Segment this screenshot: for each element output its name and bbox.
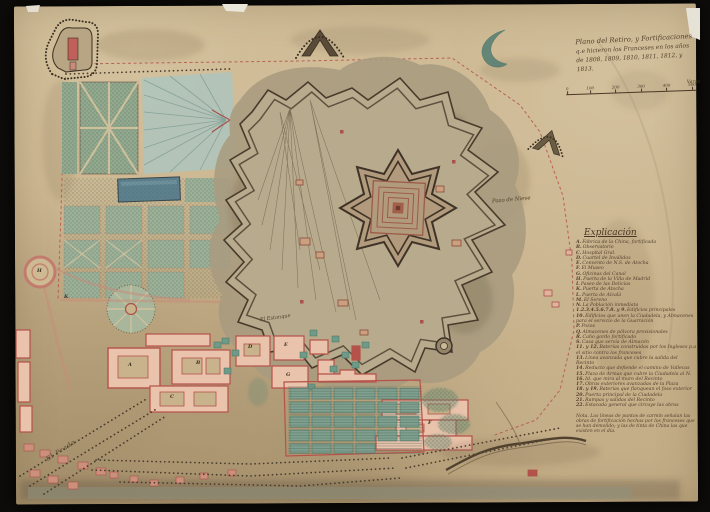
building-letter: A: [128, 362, 132, 368]
legend: Explicación A.Fábrica de la China, forti…: [576, 228, 697, 435]
scanned-map: Plano del Retiro, y Fortificaciones q.e …: [0, 0, 710, 512]
building-letter: C: [170, 394, 174, 400]
star-fort: [340, 150, 456, 266]
scale-tick: 400: [663, 83, 671, 91]
building-letter: D: [248, 344, 252, 350]
legend-nota: Nota. Las líneas de puntos de carmín señ…: [576, 414, 697, 435]
legend-entry: 11. y 12.Baterías construidas por los In…: [576, 345, 697, 356]
garden-parterres: [64, 178, 230, 333]
redoubt-east: [528, 126, 569, 158]
building-letter: F: [428, 420, 432, 426]
legend-entry: 22.Estacada general que circuye las obra…: [576, 403, 697, 408]
formal-gardens: [62, 69, 236, 174]
building-letter: B: [196, 360, 200, 366]
round-tower: [436, 338, 452, 354]
legend-entry: 10.Edificios que unen la Ciudadela, y Al…: [576, 314, 697, 325]
scale-tick: 100: [586, 85, 594, 93]
building-letter: H: [37, 268, 42, 274]
scale-tick: 300: [637, 84, 645, 92]
legend-entry: 13.Línea avanzada que cubre la salida de…: [576, 356, 697, 367]
scale-unit-label: Varas: [687, 80, 700, 85]
building-letter: K: [64, 294, 68, 300]
building-letter: E: [284, 342, 288, 348]
building-letter: G: [286, 372, 290, 378]
title-block: Plano del Retiro, y Fortificaciones q.e …: [575, 31, 701, 75]
legend-heading: Explicación: [584, 228, 697, 238]
redoubt-northwest: [46, 20, 98, 79]
scale-tick: 200: [612, 84, 620, 92]
scale-tick: 0: [566, 86, 569, 94]
orchard-plots: [284, 380, 424, 456]
